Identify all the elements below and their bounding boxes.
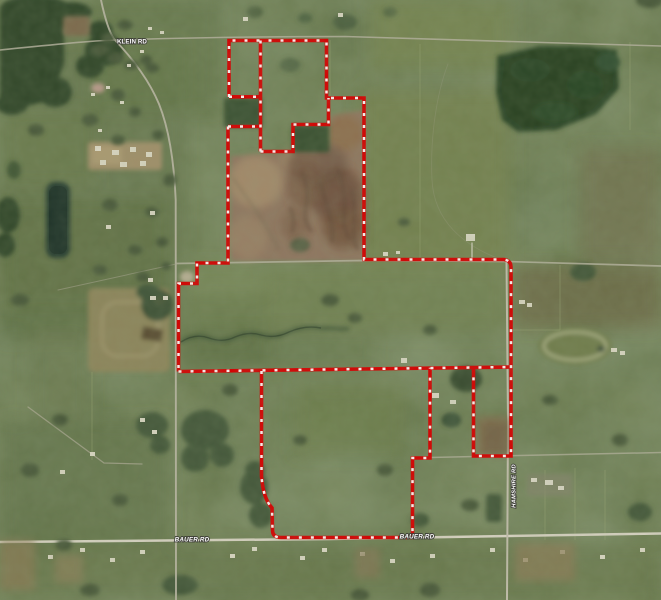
svg-text:KLEIN RD: KLEIN RD — [117, 39, 147, 46]
svg-text:BAUER RD: BAUER RD — [400, 534, 435, 541]
svg-text:HAMSHIRE RD: HAMSHIRE RD — [512, 464, 518, 508]
svg-text:BAUER RD: BAUER RD — [175, 537, 210, 544]
